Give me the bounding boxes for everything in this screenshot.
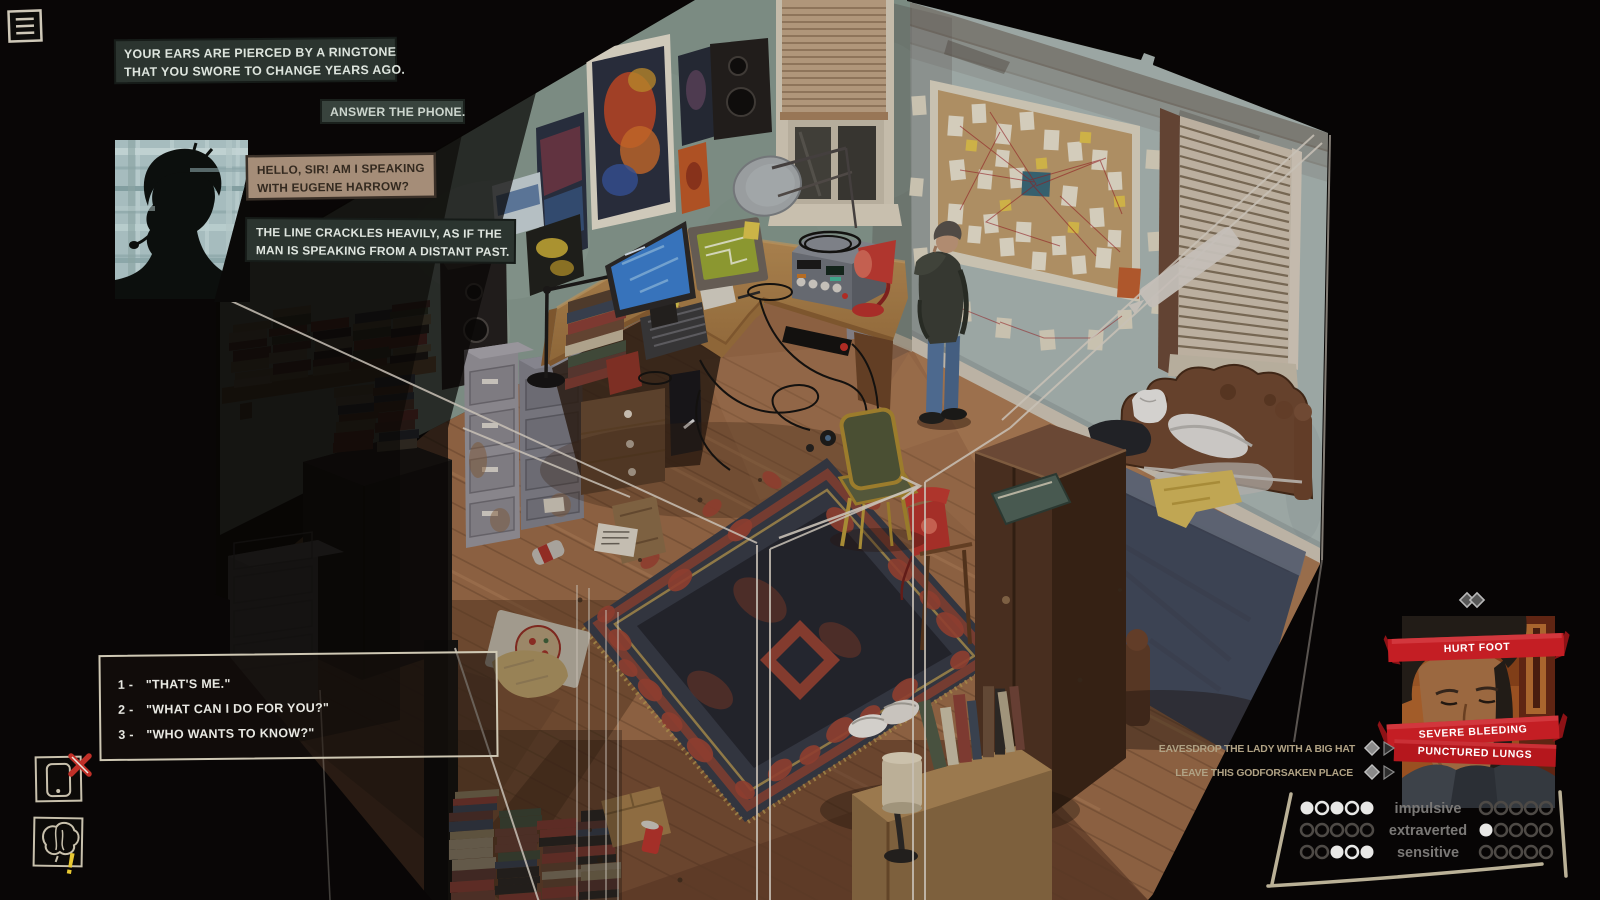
svg-text:THE LINE CRACKLES HEAVILY, AS: THE LINE CRACKLES HEAVILY, AS IF THE (256, 225, 502, 241)
svg-text:WITH EUGENE HARROW?: WITH EUGENE HARROW? (257, 179, 409, 195)
svg-text:3 -: 3 - (118, 728, 134, 742)
svg-text:THAT YOU SWORE TO CHANGE YEARS: THAT YOU SWORE TO CHANGE YEARS AGO. (124, 63, 405, 79)
svg-text:"THAT'S ME.": "THAT'S ME." (146, 677, 231, 692)
svg-text:MAN IS SPEAKING FROM A DISTANT: MAN IS SPEAKING FROM A DISTANT PAST. (256, 243, 510, 259)
svg-text:EAVESDROP THE LADY WITH A BIG: EAVESDROP THE LADY WITH A BIG HAT (1159, 744, 1356, 755)
svg-text:ANSWER THE PHONE.: ANSWER THE PHONE. (330, 105, 465, 119)
svg-text:extraverted: extraverted (1389, 823, 1467, 839)
svg-text:YOUR EARS ARE PIERCED BY A RIN: YOUR EARS ARE PIERCED BY A RINGTONE (124, 45, 396, 61)
svg-text:HELLO, SIR! AM I SPEAKING: HELLO, SIR! AM I SPEAKING (257, 161, 425, 177)
svg-text:impulsive: impulsive (1395, 801, 1462, 817)
svg-text:sensitive: sensitive (1397, 845, 1459, 861)
svg-text:"WHO WANTS TO KNOW?": "WHO WANTS TO KNOW?" (146, 726, 314, 742)
svg-text:"WHAT CAN I DO FOR YOU?": "WHAT CAN I DO FOR YOU?" (146, 701, 329, 717)
svg-text:2 -: 2 - (118, 703, 134, 717)
svg-text:LEAVE THIS GODFORSAKEN PLACE: LEAVE THIS GODFORSAKEN PLACE (1175, 768, 1353, 779)
svg-text:1 -: 1 - (118, 678, 134, 692)
svg-text:HURT FOOT: HURT FOOT (1444, 641, 1511, 655)
